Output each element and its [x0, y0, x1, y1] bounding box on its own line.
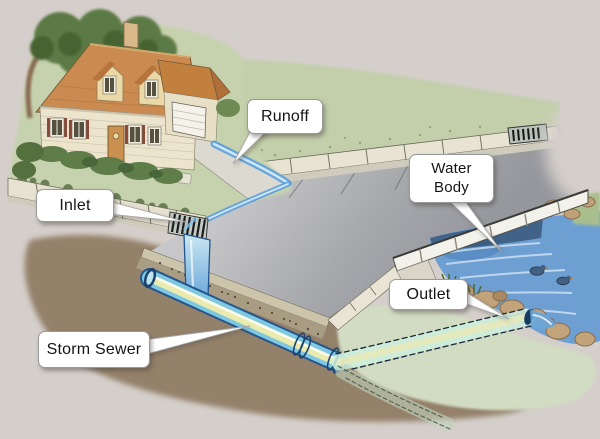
- runoff-label-text: Runoff: [261, 107, 309, 127]
- inlet-label-text: Inlet: [59, 196, 90, 216]
- outlet-label: Outlet: [389, 279, 468, 310]
- storm-sewer-label-text: Storm Sewer: [47, 340, 142, 360]
- water-body-label: Water Body: [409, 154, 494, 203]
- storm-sewer-diagram: Runoff Inlet Water Body Outlet Storm Sew…: [0, 0, 600, 439]
- far-storm-grate: [508, 124, 548, 144]
- bush: [216, 99, 240, 117]
- runoff-label: Runoff: [247, 99, 323, 134]
- water-body-label-line2: Body: [434, 179, 469, 197]
- outlet-label-text: Outlet: [407, 285, 451, 305]
- water-body-label-line1: Water: [431, 160, 471, 178]
- chimney: [124, 22, 138, 48]
- inlet-label: Inlet: [36, 189, 114, 222]
- storm-sewer-label: Storm Sewer: [38, 331, 150, 368]
